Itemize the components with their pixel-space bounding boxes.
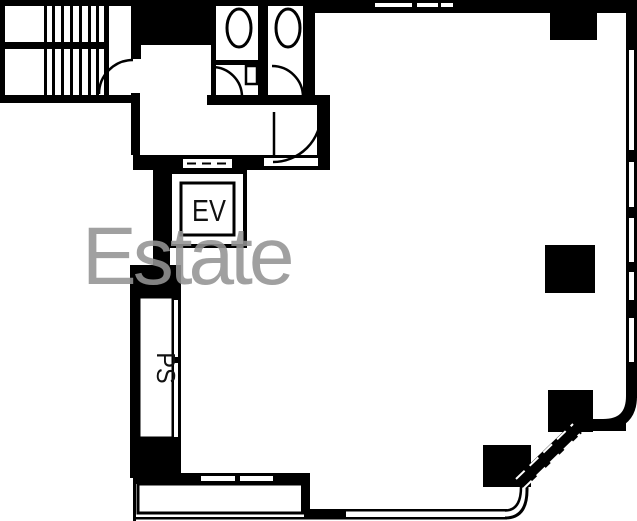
window-glass: [629, 162, 634, 207]
stair-tread: [96, 4, 99, 42]
stair-tread: [70, 48, 73, 95]
stair-tread: [70, 4, 73, 42]
window-slit: [417, 3, 438, 7]
stair-tread: [88, 48, 91, 95]
window-glass: [629, 218, 634, 262]
stair-tread: [61, 48, 64, 95]
pipe-shaft: PS: [130, 278, 181, 478]
stair-tread: [79, 48, 82, 95]
window-slit: [375, 3, 412, 7]
window-slit: [201, 476, 235, 481]
pillar: [545, 245, 595, 293]
stair-tread: [88, 4, 91, 42]
floor-plan: EV PS: [0, 0, 637, 521]
floor-plan-drawing: EV PS: [0, 0, 637, 521]
toilet-icon: [227, 9, 251, 47]
pipe-shaft-label: PS: [151, 352, 179, 383]
window-glass: [629, 272, 634, 300]
floor-background: [0, 0, 637, 521]
balcony: [133, 473, 310, 521]
window-glass: [629, 318, 634, 362]
stair-tread: [79, 4, 82, 42]
window-slit: [240, 476, 273, 481]
window-slit: [441, 3, 453, 7]
balcony-outline: [138, 484, 304, 513]
sink-icon: [246, 66, 257, 84]
elevator-label: EV: [192, 194, 226, 229]
toilet-icon: [276, 9, 300, 47]
stair-tread: [52, 4, 55, 42]
window-glass: [629, 50, 634, 150]
pillar: [550, 0, 597, 40]
stair-tread: [52, 48, 55, 95]
stair-tread: [61, 4, 64, 42]
